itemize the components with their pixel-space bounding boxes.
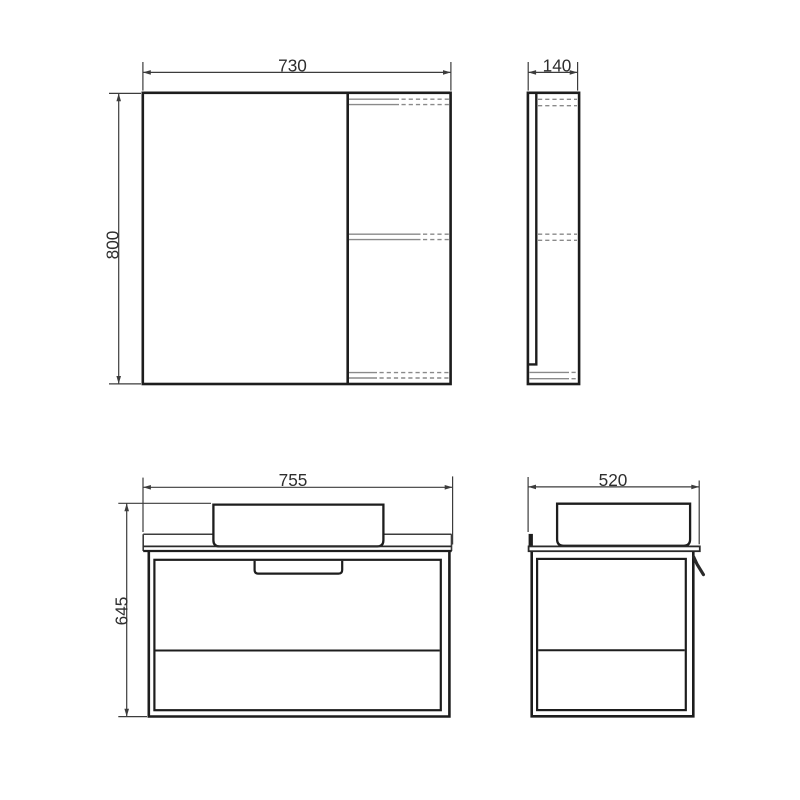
svg-text:140: 140 [543, 55, 572, 75]
svg-text:755: 755 [279, 470, 308, 490]
svg-text:520: 520 [599, 470, 628, 490]
svg-text:800: 800 [103, 231, 123, 260]
svg-text:645: 645 [111, 597, 131, 626]
svg-text:730: 730 [278, 55, 307, 75]
